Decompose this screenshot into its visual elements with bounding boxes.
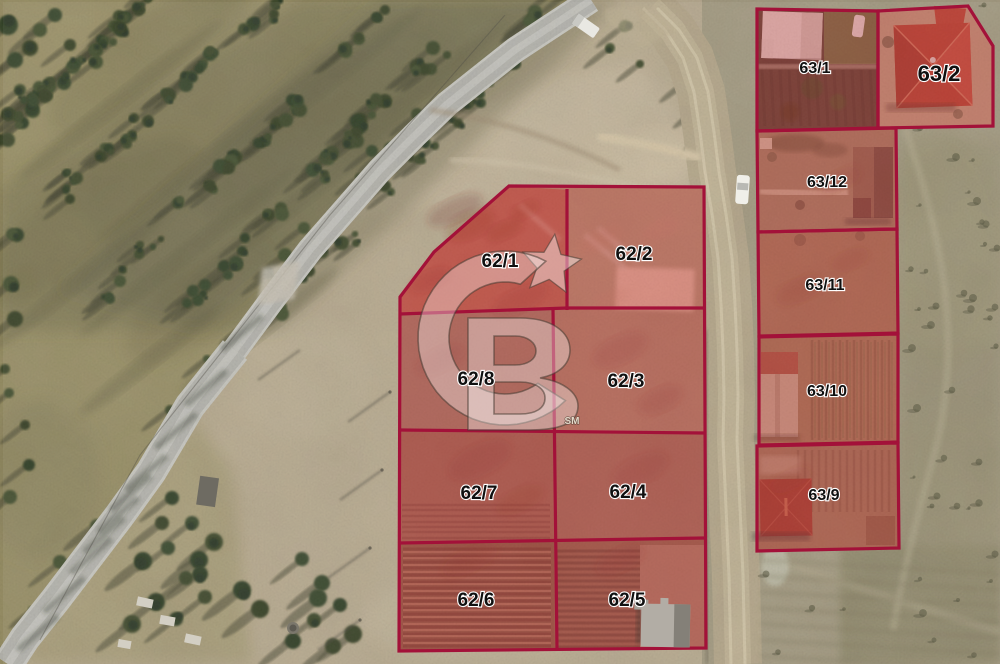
svg-text:63/12: 63/12 [807,174,847,191]
svg-text:63/10: 63/10 [807,383,847,400]
svg-text:62/8: 62/8 [458,369,495,390]
svg-text:63/9: 63/9 [808,487,839,504]
svg-text:62/6: 62/6 [458,590,495,611]
svg-text:SM: SM [565,416,580,427]
svg-text:62/4: 62/4 [610,482,647,503]
svg-text:62/1: 62/1 [482,251,519,272]
svg-text:62/2: 62/2 [616,244,653,265]
svg-text:62/7: 62/7 [461,483,498,504]
svg-text:63/11: 63/11 [805,277,844,294]
svg-text:62/5: 62/5 [609,590,646,611]
svg-text:62/3: 62/3 [608,371,645,392]
svg-text:63/2: 63/2 [918,61,961,86]
svg-text:63/1: 63/1 [799,60,830,77]
